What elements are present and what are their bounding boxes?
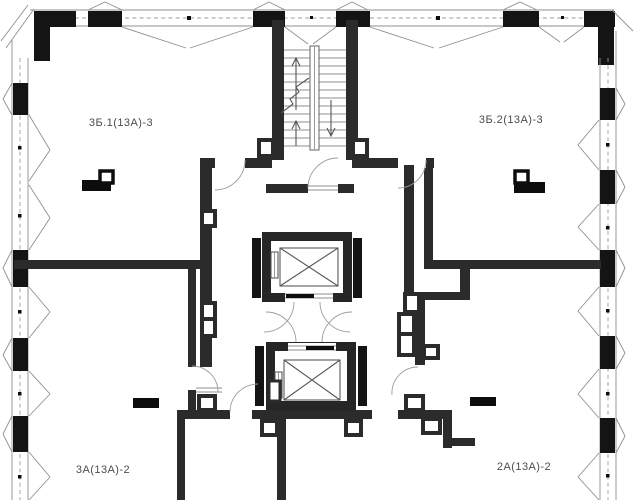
room-3b2-area[interactable]: [362, 30, 596, 156]
room-3b1-label: 3Б.1(13А)-3: [89, 117, 153, 129]
duct-box: [202, 303, 215, 319]
room-2a-left-wall: [424, 168, 433, 262]
elevator-1: [252, 237, 362, 304]
corridor-top-wall: [426, 158, 434, 168]
elevator-pilaster: [255, 346, 264, 406]
stair-break-line: [281, 78, 309, 113]
corridor-right-wall: [404, 165, 414, 300]
duct-box: [405, 294, 419, 312]
facade-pier: [598, 11, 614, 65]
duct-box: [202, 211, 215, 226]
duct-symbol-3a: [133, 398, 159, 408]
room-2a-top-wall: [424, 260, 601, 269]
duct-box: [269, 381, 280, 401]
facade-pier: [503, 11, 539, 27]
facade-pier: [600, 336, 615, 369]
floor-plan-drawing: 3Б.1(13А)-3 3Б.2(13А)-3 3А(13А)-2 2А(13А…: [0, 0, 634, 500]
staircase-symbol: [281, 46, 346, 193]
stairwell-bottom-wall: [266, 184, 308, 193]
facade-pier: [600, 418, 615, 453]
facade-pier: [13, 338, 28, 371]
door-arc: [264, 302, 294, 332]
lobby-bottom-wall: [252, 410, 372, 419]
room-3a-right-wall: [188, 262, 196, 367]
room-3b1-area[interactable]: [32, 30, 268, 156]
duct-box: [399, 314, 414, 334]
facade-pier: [13, 83, 28, 115]
room-3a-right-wall: [188, 390, 196, 412]
duct-symbol-3b1: [82, 171, 113, 191]
corridor-top-wall: [245, 158, 272, 168]
corridor-top-wall: [352, 158, 398, 168]
room-3a-label: 3А(13А)-2: [76, 464, 130, 476]
facade-pier: [600, 88, 615, 120]
duct-box: [399, 334, 414, 355]
door-arc: [230, 384, 258, 412]
elevator-2: [255, 343, 367, 406]
door-arc: [392, 367, 418, 395]
elevator-pilaster: [353, 238, 362, 298]
duct-symbol-3b2: [514, 171, 545, 193]
facade-pier: [600, 170, 615, 204]
room-3a-right-wall: [177, 419, 185, 500]
stair-up-arrow: [292, 121, 300, 146]
stair-down-arrow: [327, 100, 335, 136]
door-arc: [215, 160, 245, 190]
duct-box: [346, 421, 361, 435]
duct-box: [202, 319, 215, 336]
floor-plan: 3Б.1(13А)-3 3Б.2(13А)-3 3А(13А)-2 2А(13А…: [0, 0, 634, 500]
elevator-pilaster: [358, 346, 367, 406]
room-3b2-label: 3Б.2(13А)-3: [479, 114, 543, 126]
facade-pier: [13, 416, 28, 452]
facade-pier: [600, 250, 615, 287]
duct-box: [262, 421, 277, 435]
room-2a-label: 2А(13А)-2: [497, 461, 551, 473]
duct-box: [424, 346, 438, 358]
duct-box: [199, 396, 215, 410]
elevator-pilaster: [252, 238, 261, 298]
duct-box: [406, 396, 423, 410]
room-3a-top-wall: [14, 260, 212, 269]
stairwell-bottom-wall: [338, 184, 354, 193]
door-arc: [322, 312, 352, 342]
facade-pier: [88, 11, 122, 27]
